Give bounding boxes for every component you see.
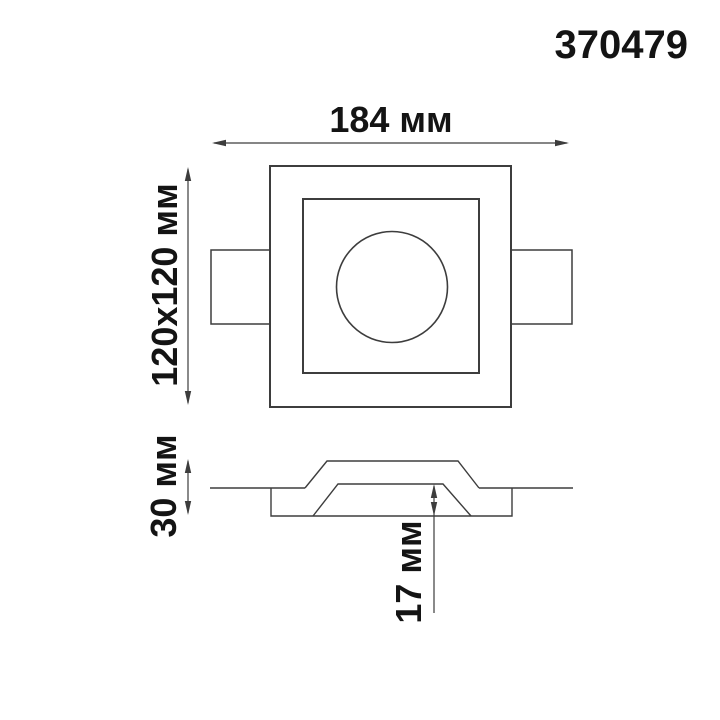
technical-drawing: 370479 184 мм 120x120 мм 30 мм 1 xyxy=(0,0,720,720)
dim-width-label: 184 мм xyxy=(329,99,452,140)
inner-frame xyxy=(303,199,479,373)
dim-depth-label: 17 мм xyxy=(388,520,429,623)
flange-profile xyxy=(271,488,512,516)
arrow-up-icon xyxy=(185,167,191,181)
arrow-down-icon xyxy=(431,502,437,516)
arrow-up-icon xyxy=(185,459,191,473)
dim-depth: 17 мм xyxy=(388,484,437,624)
part-number: 370479 xyxy=(555,23,688,67)
arrow-down-icon xyxy=(185,391,191,405)
outer-frame xyxy=(270,166,511,407)
dim-face: 120x120 мм xyxy=(144,167,191,405)
dim-height-label: 30 мм xyxy=(143,434,184,537)
left-mount-tab xyxy=(211,250,270,324)
right-mount-tab xyxy=(511,250,572,324)
lamp-opening-circle xyxy=(337,232,448,343)
section-view xyxy=(210,461,573,516)
arrow-down-icon xyxy=(185,501,191,515)
dim-face-label: 120x120 мм xyxy=(144,183,185,386)
arrow-up-icon xyxy=(431,484,437,498)
dim-width: 184 мм xyxy=(212,99,569,146)
arrow-right-icon xyxy=(555,140,569,146)
top-view xyxy=(211,166,572,407)
dim-height: 30 мм xyxy=(143,434,191,537)
recess-profile xyxy=(313,484,471,516)
arrow-left-icon xyxy=(212,140,226,146)
